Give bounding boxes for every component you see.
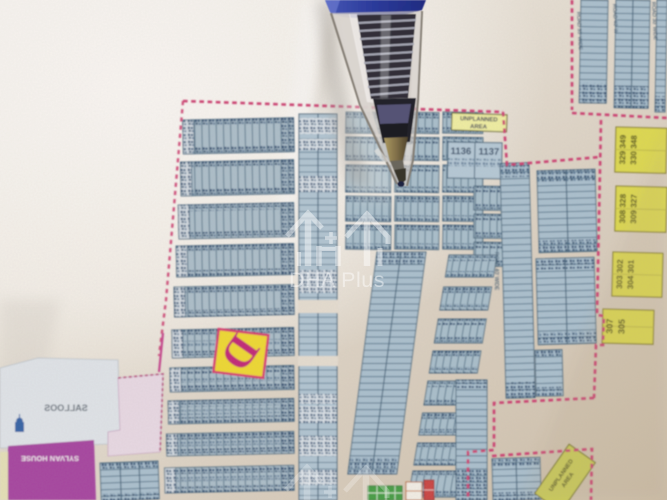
svg-text:DHA Plus: DHA Plus [289, 268, 385, 292]
